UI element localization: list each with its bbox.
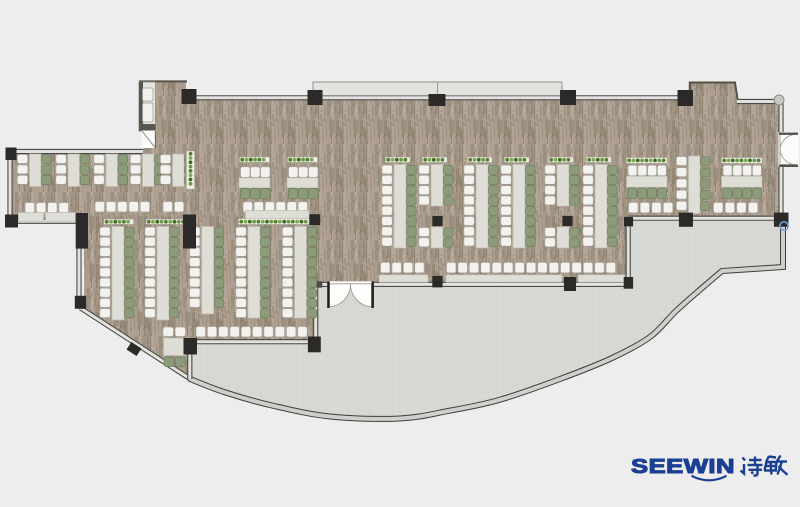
svg-text:SEEWIN: SEEWIN xyxy=(631,455,735,478)
